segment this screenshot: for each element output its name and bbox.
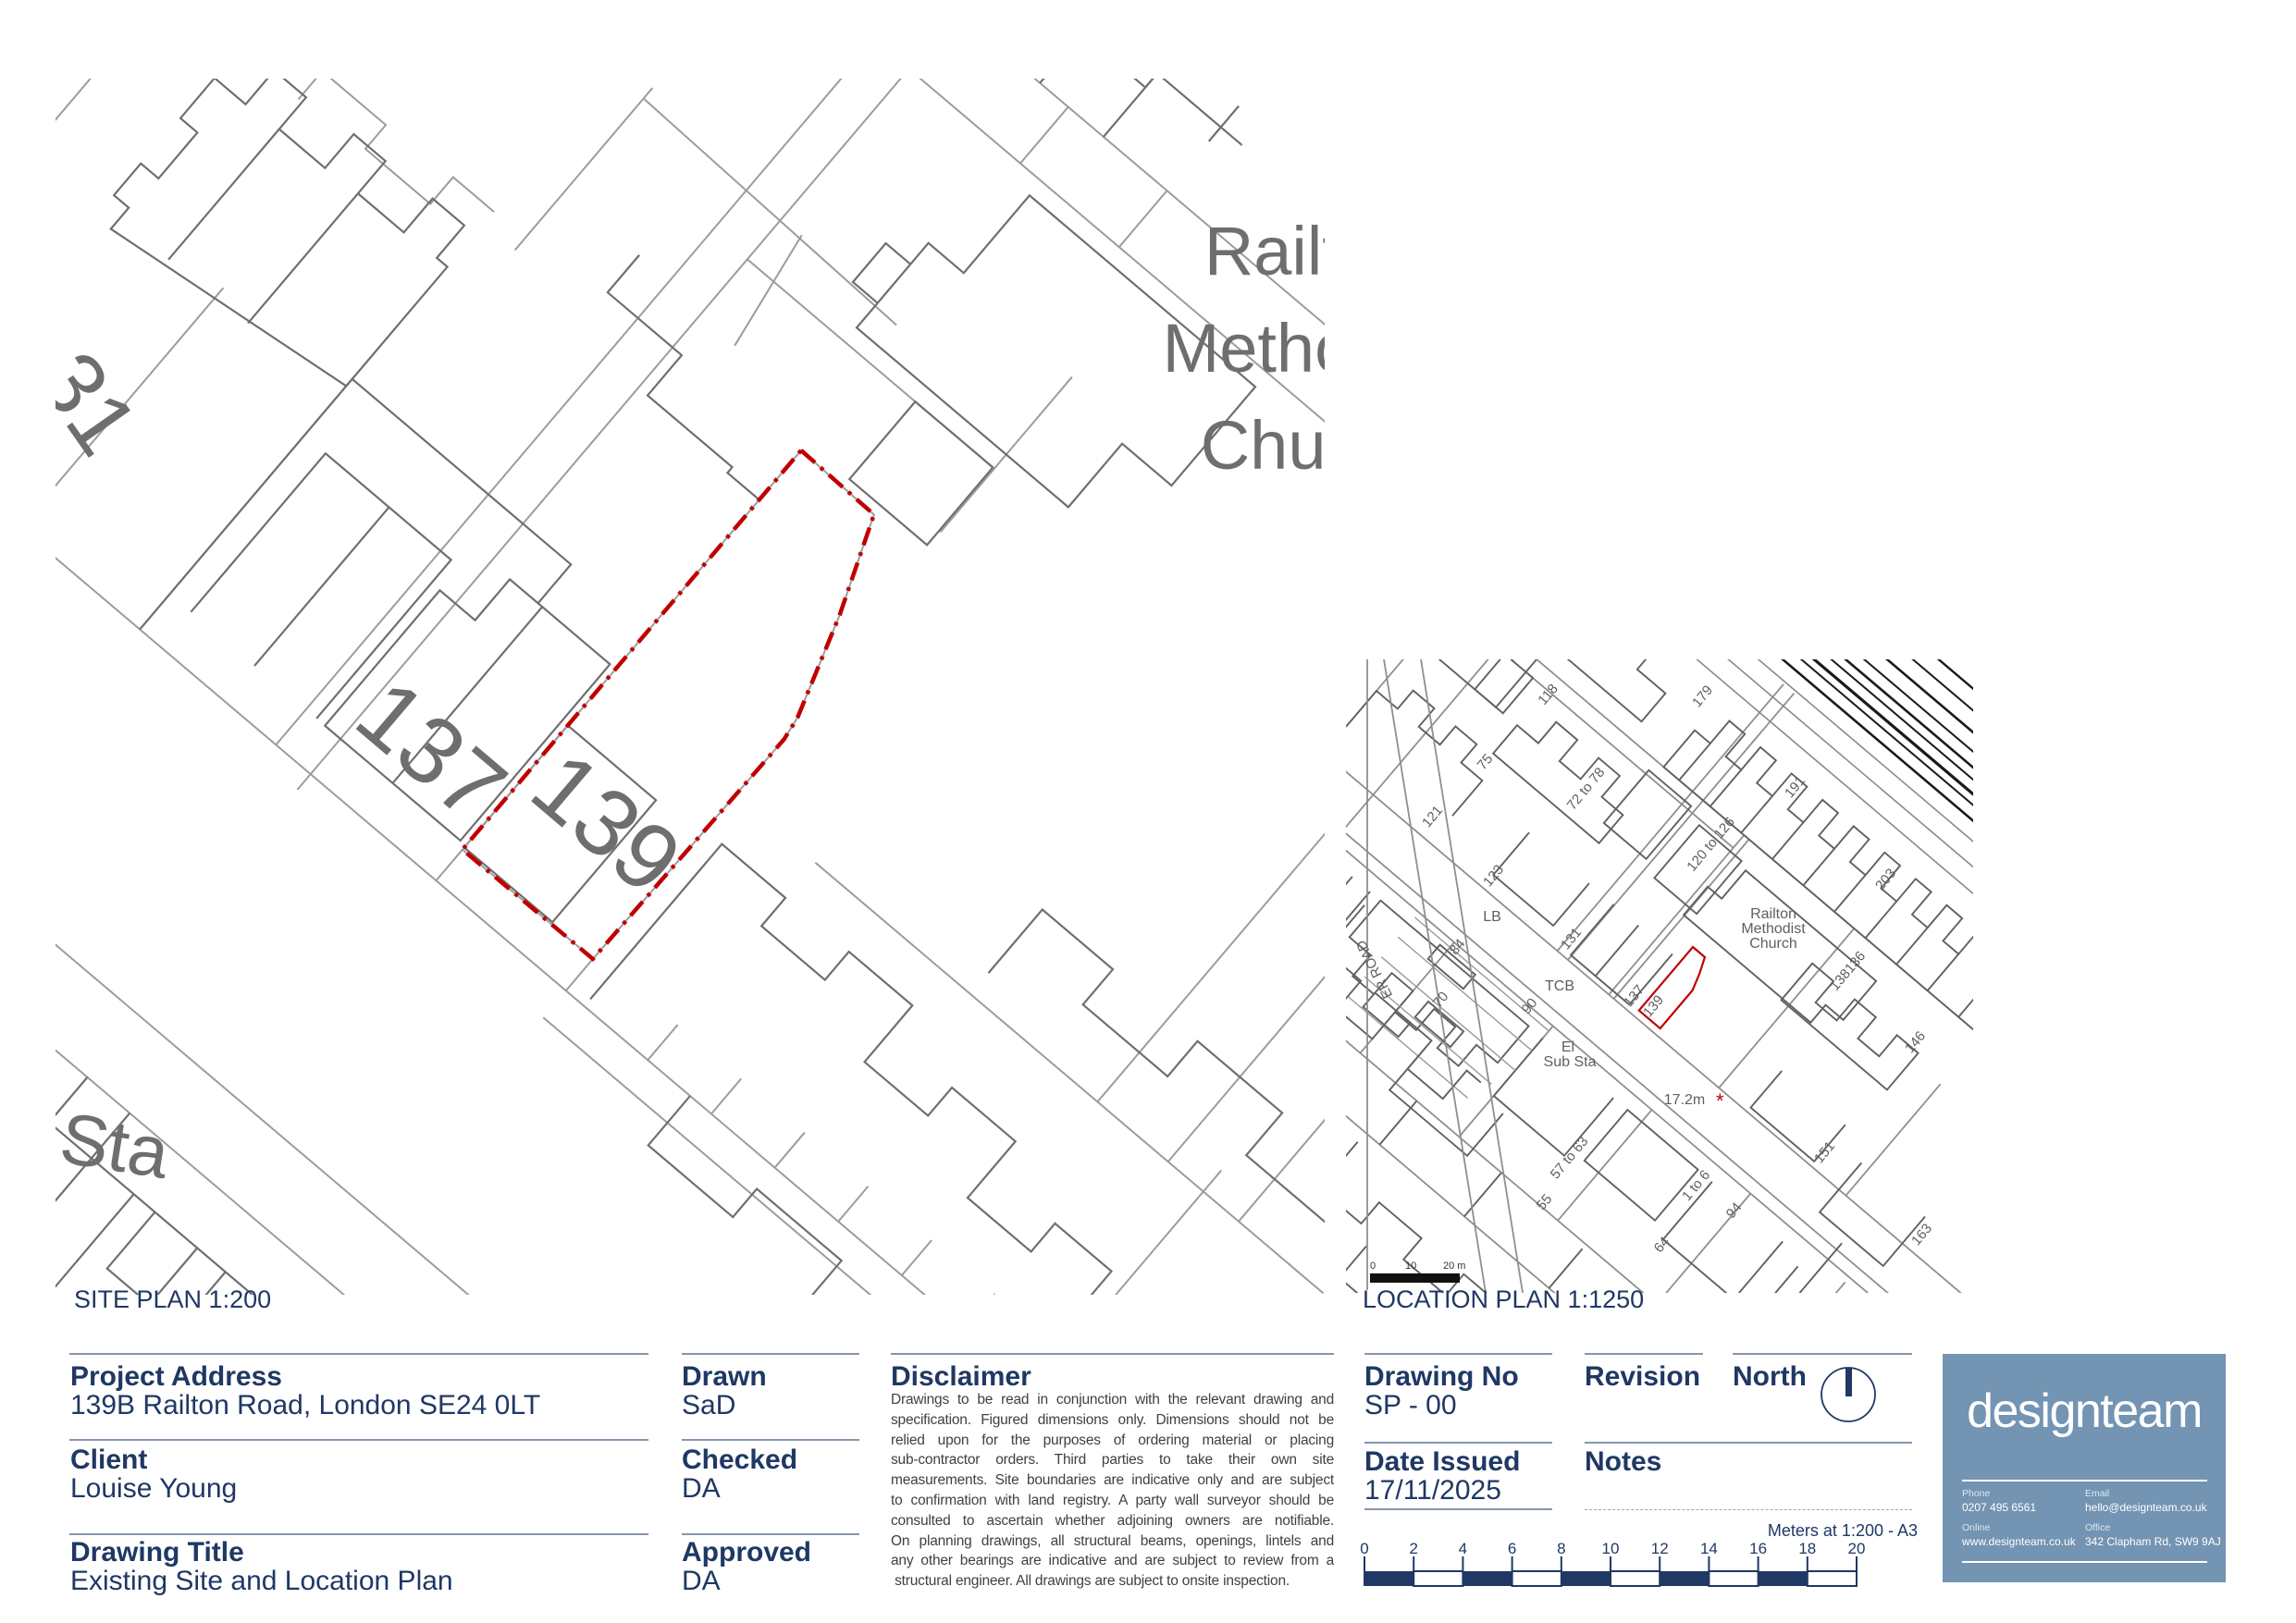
svg-text:179: 179 xyxy=(1689,682,1716,710)
svg-text:75: 75 xyxy=(1475,751,1497,773)
svg-text:8: 8 xyxy=(1557,1540,1565,1557)
svg-text:4: 4 xyxy=(1459,1540,1467,1557)
svg-text:Railton: Railton xyxy=(1750,906,1796,922)
svg-text:12: 12 xyxy=(1651,1540,1669,1557)
svg-text:TCB: TCB xyxy=(1545,978,1574,994)
svg-text:0: 0 xyxy=(1370,1260,1376,1272)
svg-text:64: 64 xyxy=(1651,1234,1673,1256)
svg-text:El: El xyxy=(1562,1039,1574,1055)
svg-text:31: 31 xyxy=(19,335,156,473)
svg-text:121: 121 xyxy=(1419,803,1446,830)
svg-text:151: 151 xyxy=(1811,1138,1838,1166)
svg-text:203: 203 xyxy=(1872,866,1899,893)
svg-text:17.2m: 17.2m xyxy=(1664,1092,1705,1108)
svg-text:0: 0 xyxy=(1360,1540,1368,1557)
svg-text:163: 163 xyxy=(1908,1221,1935,1248)
svg-text:Railton: Railton xyxy=(1204,213,1417,289)
svg-text:118: 118 xyxy=(1535,681,1561,707)
svg-text:20 m: 20 m xyxy=(1443,1260,1465,1272)
svg-text:Methodist: Methodist xyxy=(1163,310,1460,387)
svg-text:14: 14 xyxy=(1700,1540,1718,1557)
svg-text:131: 131 xyxy=(1558,925,1585,953)
svg-text:10: 10 xyxy=(1602,1540,1620,1557)
svg-text:Sub Sta: Sub Sta xyxy=(1544,1054,1597,1070)
svg-text:57 to 63: 57 to 63 xyxy=(1548,1134,1592,1182)
svg-text:*: * xyxy=(1716,1089,1724,1113)
svg-text:18: 18 xyxy=(1798,1540,1816,1557)
svg-text:138136: 138136 xyxy=(1827,948,1869,993)
svg-text:Church: Church xyxy=(1749,936,1797,952)
svg-text:146: 146 xyxy=(1902,1028,1929,1056)
svg-text:191: 191 xyxy=(1782,773,1808,801)
svg-text:LB: LB xyxy=(1483,909,1501,925)
svg-text:Methodist: Methodist xyxy=(1741,921,1806,937)
svg-text:55: 55 xyxy=(1534,1191,1556,1213)
svg-text:6: 6 xyxy=(1508,1540,1516,1557)
svg-text:Sta: Sta xyxy=(55,1097,175,1194)
svg-text:2: 2 xyxy=(1409,1540,1417,1557)
svg-text:20: 20 xyxy=(1848,1540,1866,1557)
svg-text:70: 70 xyxy=(1430,989,1452,1011)
svg-text:123: 123 xyxy=(1480,862,1507,890)
svg-text:90: 90 xyxy=(1519,995,1541,1017)
svg-text:10: 10 xyxy=(1405,1260,1416,1272)
svg-text:137: 137 xyxy=(338,659,526,842)
svg-text:16: 16 xyxy=(1749,1540,1767,1557)
svg-text:Church: Church xyxy=(1201,407,1422,484)
